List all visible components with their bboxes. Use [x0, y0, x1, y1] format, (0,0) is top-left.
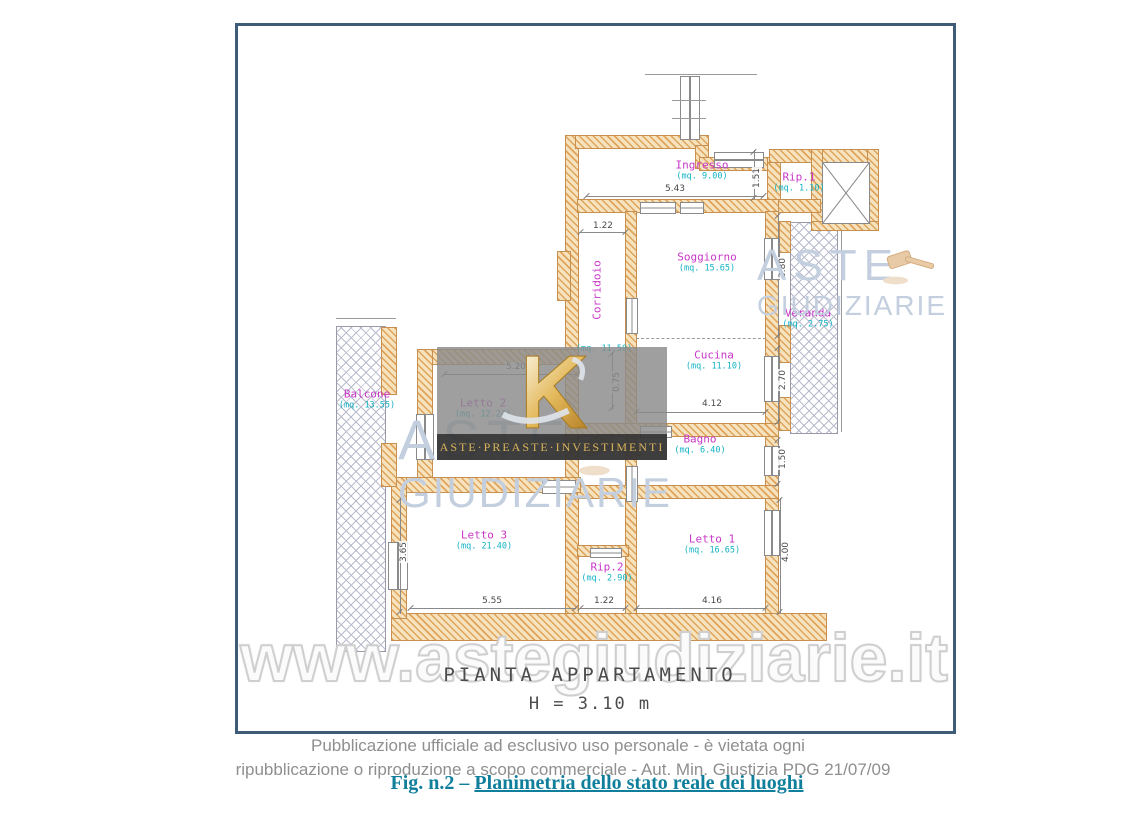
balcony-top-line: [336, 318, 396, 319]
figure-caption-prefix: Fig. n.2 –: [391, 772, 475, 794]
room-area: (mq. 9.00): [676, 172, 729, 182]
watermark-brand-line2: GIUDIZIARIE: [757, 292, 947, 320]
wall: [780, 398, 790, 430]
door-symbol: [590, 548, 622, 558]
room-label-rip2: Rip.2 (mq. 2.90): [581, 561, 632, 584]
wall: [382, 328, 396, 394]
room-name: Corridoio: [591, 260, 604, 320]
room-label-letto1: Letto 1 (mq. 16.65): [684, 533, 740, 556]
dim-line: [586, 196, 764, 197]
logo-banner: ASTE·PREASTE·INVESTIMENTI: [437, 434, 667, 460]
room-name: Balcone: [339, 388, 395, 401]
wall: [770, 150, 878, 162]
wall: [578, 200, 778, 212]
window-symbol: [764, 510, 780, 556]
room-area: (mq. 1.10): [773, 184, 824, 194]
figure-caption-link[interactable]: Planimetria dello stato reale dei luoghi: [474, 772, 803, 794]
flue-tick: [672, 118, 706, 119]
balcony-hatch-area: [336, 326, 386, 652]
dim-line: [580, 232, 626, 233]
dim-value: 3.65: [399, 541, 409, 563]
plan-title: PIANTA APPARTAMENTO: [400, 664, 780, 686]
dim-line: [580, 608, 626, 609]
dim-line: [410, 608, 576, 609]
dim-value: 5.55: [481, 596, 503, 606]
dim-value: 2.70: [778, 369, 788, 391]
elevator-x-icon: [823, 163, 869, 223]
room-area: (mq. 21.40): [456, 542, 512, 552]
room-name: Ingresso: [676, 159, 729, 172]
opening-dashed-line: [636, 338, 766, 339]
room-area: (mq. 15.65): [677, 264, 737, 274]
dim-value: 4.12: [701, 399, 723, 409]
room-area: (mq. 6.40): [674, 446, 725, 456]
room-label-cucina: Cucina (mq. 11.10): [686, 349, 742, 372]
room-area: (mq. 2.75): [782, 320, 833, 330]
footer-disclaimer-line1: Pubblicazione ufficiale ad esclusivo uso…: [203, 736, 913, 756]
room-name: Letto 1: [684, 533, 740, 546]
plan-height-note: H = 3.10 m: [400, 694, 780, 714]
dim-value: 1.50: [778, 448, 788, 470]
roof-line: [645, 74, 757, 75]
room-area: (mq. 11.10): [686, 362, 742, 372]
room-area: (mq. 2.90): [581, 574, 632, 584]
room-name: Bagno: [674, 433, 725, 446]
wall: [382, 444, 396, 486]
dim-value: 1.22: [592, 221, 614, 231]
wall: [558, 252, 570, 300]
window-symbol: [640, 202, 676, 214]
room-label-letto3: Letto 3 (mq. 21.40): [456, 529, 512, 552]
room-label-bagno: Bagno (mq. 6.40): [674, 433, 725, 456]
door-symbol: [626, 298, 638, 334]
flue-symbol: [680, 76, 700, 140]
figure-caption: Fig. n.2 – Planimetria dello stato reale…: [235, 772, 959, 795]
dim-line: [636, 608, 766, 609]
room-name: Letto 3: [456, 529, 512, 542]
elevator-shaft: [822, 162, 870, 224]
room-name: Rip.2: [581, 561, 632, 574]
window-symbol: [680, 202, 704, 214]
watermark-site-url: www.astegiudiziarie.it: [237, 618, 951, 698]
room-area: (mq. 13.55): [339, 401, 395, 411]
room-label-soggiorno: Soggiorno (mq. 15.65): [677, 251, 737, 274]
room-area: (mq. 16.65): [684, 546, 740, 556]
logo-r-monogram-icon: [497, 351, 607, 433]
room-label-ingresso: Ingresso (mq. 9.00): [676, 159, 729, 182]
wall: [780, 326, 790, 362]
gavel-icon: [880, 243, 938, 288]
room-name: Rip.1: [773, 171, 824, 184]
dim-value: 4.16: [701, 596, 723, 606]
room-label-rip1: Rip.1 (mq. 1.10): [773, 171, 824, 194]
room-name: Soggiorno: [677, 251, 737, 264]
room-name: Cucina: [686, 349, 742, 362]
dim-value: 1.51: [752, 167, 762, 189]
watermark-logo-box: ASTE·PREASTE·INVESTIMENTI: [437, 347, 667, 460]
room-label-corridoio: Corridoio: [591, 260, 604, 320]
dim-value: 5.43: [664, 184, 686, 194]
room-label-balcone: Balcone (mq. 13.55): [339, 388, 395, 411]
dim-value: 4.00: [781, 541, 791, 563]
flue-tick: [672, 100, 706, 101]
dim-value: 1.22: [593, 596, 615, 606]
